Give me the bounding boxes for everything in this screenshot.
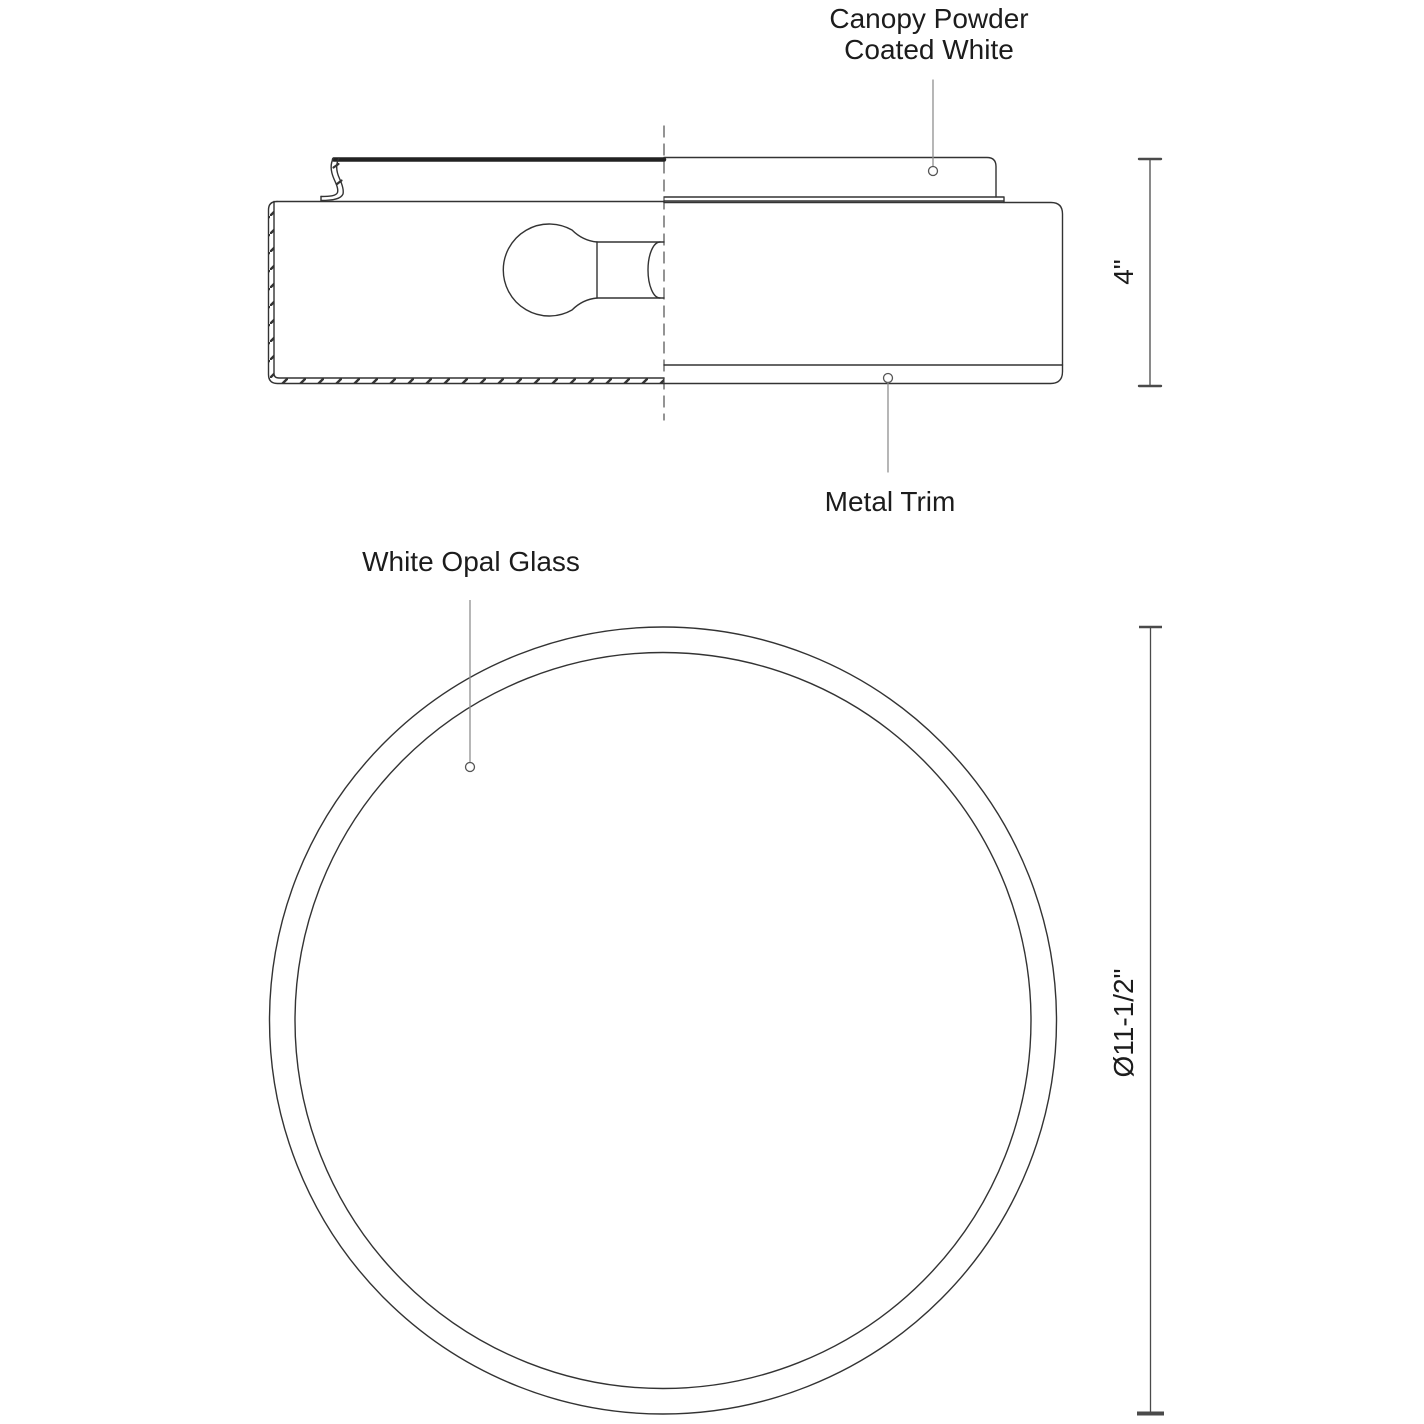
white-opal-glass-label: White Opal Glass	[321, 546, 621, 577]
mounting-clip	[321, 158, 343, 201]
height-dimension-label: 4"	[1108, 222, 1140, 322]
metal-trim-label: Metal Trim	[740, 486, 1040, 517]
canopy-label-line2: Coated White	[779, 34, 1079, 65]
bulb-globe	[503, 224, 597, 316]
technical-drawing-page: Canopy Powder Coated White Metal Trim Wh…	[0, 0, 1424, 1424]
glass-wall-inner-line	[274, 202, 664, 379]
shade-body-outline	[664, 203, 1063, 384]
side-section-view	[269, 80, 1162, 472]
glass-shade-section	[269, 202, 665, 384]
diameter-dimension-label: Ø11-1/2"	[1108, 943, 1140, 1103]
lamp-bulb	[503, 224, 664, 316]
leader-dot	[929, 167, 938, 176]
white-opal-glass-leader	[466, 600, 475, 772]
canopy-outline	[664, 158, 996, 198]
inner-glass-circle	[295, 653, 1031, 1389]
glass-bottom-hatch	[274, 378, 664, 384]
canopy-label: Canopy Powder Coated White	[779, 3, 1079, 65]
canopy-label-line1: Canopy Powder	[779, 3, 1079, 34]
leader-dot	[884, 374, 893, 383]
exterior-elevation	[664, 158, 1063, 384]
bulb-socket-cap	[648, 242, 660, 298]
canopy-flange	[664, 197, 1004, 203]
height-dimension	[1139, 159, 1161, 386]
metal-trim-leader	[884, 374, 893, 473]
bottom-plan-view	[270, 600, 1165, 1414]
fixture-drawing-canvas	[0, 0, 1424, 1424]
glass-wall-outer-line	[269, 202, 665, 384]
diameter-dimension	[1137, 627, 1164, 1414]
leader-dot	[466, 763, 475, 772]
outer-rim-circle	[270, 627, 1057, 1414]
canopy-leader	[929, 80, 938, 176]
glass-wall-hatch	[269, 207, 275, 379]
